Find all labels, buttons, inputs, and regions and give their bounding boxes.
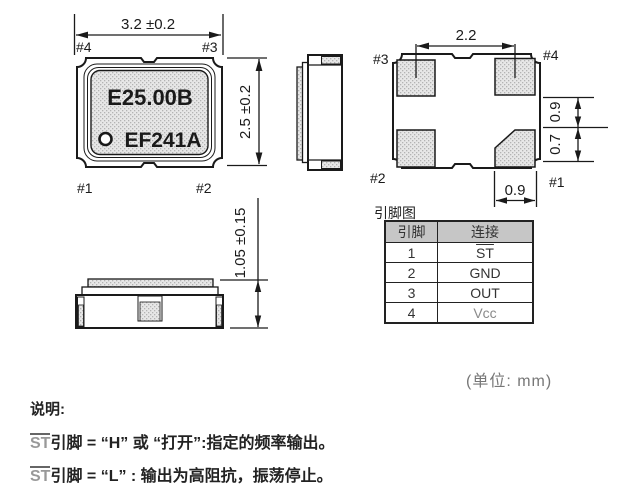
unit-label: (单位: mm) xyxy=(466,367,552,391)
bottom-view-pin3-label: #3 xyxy=(373,51,389,67)
table-row: 2 GND xyxy=(385,263,533,283)
table-row: 3 OUT xyxy=(385,283,533,303)
st-signal-label: ST xyxy=(30,466,50,485)
vcc-signal-label: Vcc xyxy=(473,305,496,321)
top-view-pin3-label: #3 xyxy=(202,39,218,55)
pin-connection-cell: OUT xyxy=(438,283,534,303)
notes-heading: 说明: xyxy=(30,398,334,419)
bottom-view-pin1-label: #1 xyxy=(549,174,565,190)
pin-connection-cell: Vcc xyxy=(438,303,534,324)
pin-connection-cell: GND xyxy=(438,263,534,283)
bottom-view-pin2-label: #2 xyxy=(370,170,386,186)
pad-2 xyxy=(397,130,435,167)
dimension-pad-width: 0.9 xyxy=(495,171,537,207)
pin-table-header-pin: 引脚 xyxy=(385,221,438,243)
package-top-view: E25.00B EF241A #4 #3 #1 #2 xyxy=(76,39,222,196)
table-row: 4 Vcc xyxy=(385,303,533,324)
drawing-canvas: E25.00B EF241A #4 #3 #1 #2 3.2 ±0.2 2.5 … xyxy=(0,0,642,360)
dimension-right-side: 0.9 0.7 xyxy=(543,98,608,162)
component-drawing-page: E25.00B EF241A #4 #3 #1 #2 3.2 ±0.2 2.5 … xyxy=(0,0,642,490)
dimension-height: 2.5 ±0.2 xyxy=(227,58,267,166)
dimension-height-label: 2.5 ±0.2 xyxy=(237,85,254,139)
pin-table-header-conn: 连接 xyxy=(438,221,534,243)
marking-lot-code: EF241A xyxy=(124,129,201,152)
st-signal-label: ST xyxy=(30,433,50,452)
dimension-width-label: 3.2 ±0.2 xyxy=(121,16,175,33)
dimension-right-upper-label: 0.9 xyxy=(547,102,564,123)
dimension-thickness: 1.05 ±0.15 xyxy=(220,198,268,328)
top-view-pin4-label: #4 xyxy=(76,39,92,55)
note-line-1: ST引脚 = “H” 或 “打开”:指定的频率输出。 xyxy=(30,429,334,453)
dimension-width: 3.2 ±0.2 xyxy=(75,14,224,55)
notes-section: 说明: ST引脚 = “H” 或 “打开”:指定的频率输出。 ST引脚 = “L… xyxy=(30,398,334,490)
st-signal-label: ST xyxy=(476,245,494,261)
marking-frequency: E25.00B xyxy=(107,85,193,110)
pin-table-header-row: 引脚 连接 xyxy=(385,221,533,243)
pin-connection-cell: ST xyxy=(438,243,534,263)
dimension-thickness-label: 1.05 ±0.15 xyxy=(232,208,249,279)
note-line-2-text: 引脚 = “L” : 输出为高阻抗，振荡停止。 xyxy=(50,468,332,485)
dimension-pad-span-label: 2.2 xyxy=(456,27,477,44)
pin-table: 引脚 连接 1 ST 2 GND 3 OUT 4 Vcc xyxy=(384,220,534,324)
top-view-pin1-label: #1 xyxy=(77,180,93,196)
package-side-view xyxy=(297,55,342,170)
pin1-indicator-circle xyxy=(100,133,112,145)
pin-number-cell: 2 xyxy=(385,263,438,283)
pin-number-cell: 3 xyxy=(385,283,438,303)
dimension-right-lower-label: 0.7 xyxy=(547,134,564,155)
dimension-pad-width-label: 0.9 xyxy=(505,182,526,199)
note-line-1-text: 引脚 = “H” 或 “打开”:指定的频率输出。 xyxy=(50,435,334,452)
top-view-pin2-label: #2 xyxy=(196,180,212,196)
package-bottom-view: #3 #4 #2 #1 xyxy=(370,47,565,190)
bottom-view-pin4-label: #4 xyxy=(543,47,559,63)
pin-number-cell: 1 xyxy=(385,243,438,263)
package-front-view xyxy=(76,279,223,328)
pin-number-cell: 4 xyxy=(385,303,438,324)
table-row: 1 ST xyxy=(385,243,533,263)
note-line-2: ST引脚 = “L” : 输出为高阻抗，振荡停止。 xyxy=(30,462,334,486)
